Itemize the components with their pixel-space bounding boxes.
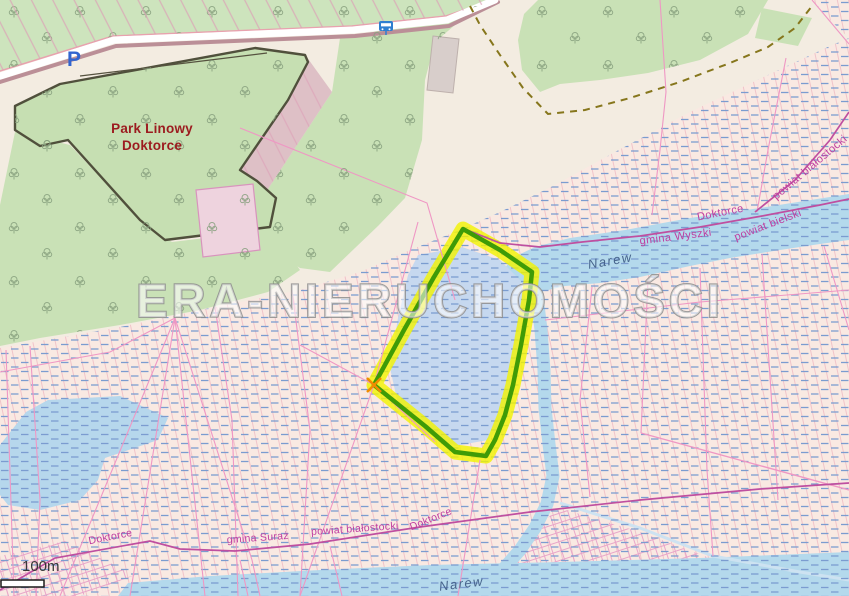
svg-text:Park Linowy: Park Linowy [111, 121, 193, 136]
scale-label: 100m [22, 558, 60, 575]
watermark-text: ERA-NIERUCHOMOŚCI [136, 274, 724, 327]
map-canvas[interactable]: P Park Linowy Doktorce Doktorce powiat b… [0, 0, 849, 596]
parking-icon: P [67, 48, 81, 71]
svg-text:Doktorce: Doktorce [122, 138, 182, 153]
map-svg: P Park Linowy Doktorce Doktorce powiat b… [0, 0, 849, 596]
